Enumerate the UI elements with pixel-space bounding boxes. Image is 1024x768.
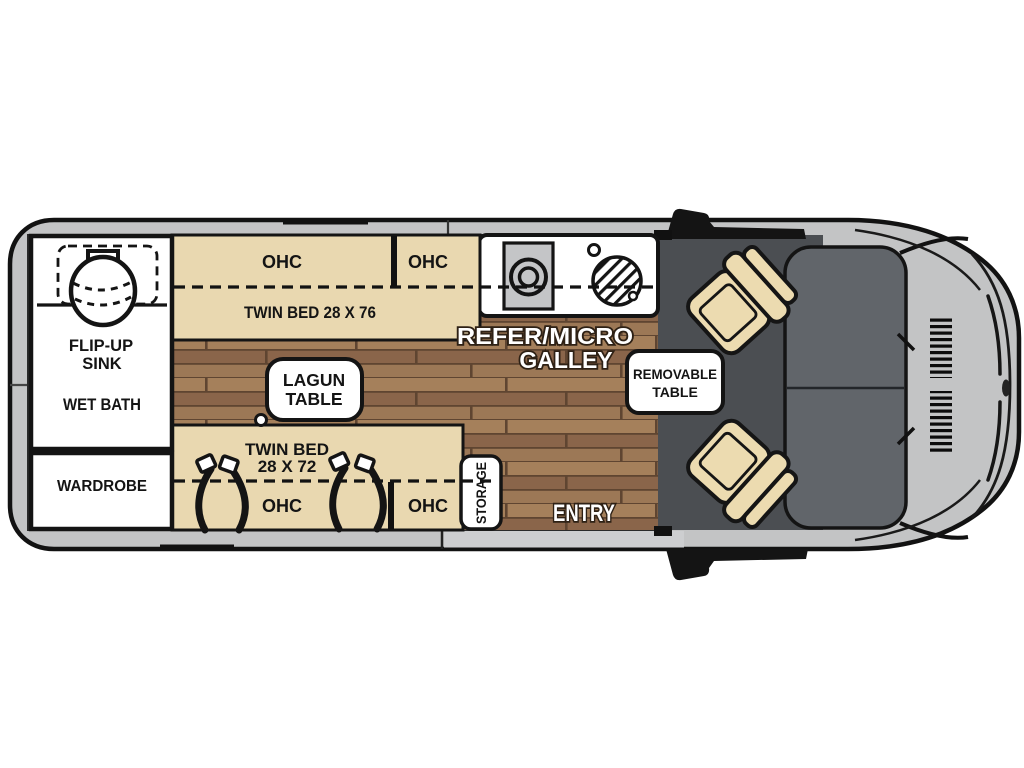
removable-table-label-1: REMOVABLE: [633, 366, 717, 382]
entry-label: ENTRY: [553, 500, 615, 527]
roof-seam-tick-top: [283, 219, 368, 225]
lagun-table-label-2: TABLE: [285, 389, 342, 409]
table-pivot: [256, 415, 267, 426]
ohc-divider-top: [391, 236, 397, 287]
seat-belt-buckle: [219, 456, 238, 474]
galley-label-1: REFER/MICRO: [457, 323, 633, 349]
rv-floorplan-image: STORAGE: [0, 0, 1024, 768]
storage-cubby: STORAGE: [461, 456, 501, 529]
wet-bath-label: WET BATH: [63, 396, 141, 414]
entry-step: [442, 530, 684, 549]
storage-label: STORAGE: [474, 462, 489, 524]
twin-bed-passenger-label-2: 28 X 72: [258, 457, 317, 476]
hood-vent-upper: [930, 317, 952, 378]
galley-label-2: GALLEY: [519, 347, 612, 373]
flip-up-sink-label-1: FLIP-UP: [69, 337, 133, 355]
roof-seam-tick-bottom: [160, 545, 234, 550]
floorplan-canvas: STORAGE: [0, 0, 1024, 768]
windshield-cab-roof: [785, 247, 906, 528]
grille-emblem: [1002, 380, 1010, 397]
twin-bed-driver-label: TWIN BED 28 X 76: [244, 303, 376, 322]
cooktop-icon: [504, 243, 553, 309]
b-pillar-bottom: [654, 526, 672, 536]
lagun-table-label-1: LAGUN: [283, 370, 345, 390]
ohc-label-bottom-right: OHC: [408, 496, 448, 516]
wardrobe-label: WARDROBE: [57, 478, 147, 495]
drain-icon: [629, 292, 637, 300]
lagun-table: LAGUN TABLE: [256, 359, 363, 426]
removable-table: REMOVABLE TABLE: [627, 351, 723, 413]
faucet-icon: [589, 245, 600, 256]
ohc-divider-bottom: [388, 482, 394, 529]
ohc-label-top-right: OHC: [408, 252, 448, 272]
removable-table-label-2: TABLE: [652, 384, 698, 400]
flip-up-sink-label-2: SINK: [82, 355, 122, 373]
ohc-label-top-left: OHC: [262, 252, 302, 272]
hood-vent-lower: [930, 391, 952, 452]
ohc-label-bottom-left: OHC: [262, 496, 302, 516]
side-mirror-bottom: [666, 549, 808, 580]
galley-counter: [479, 235, 658, 316]
seat-belt-buckle: [355, 455, 374, 473]
